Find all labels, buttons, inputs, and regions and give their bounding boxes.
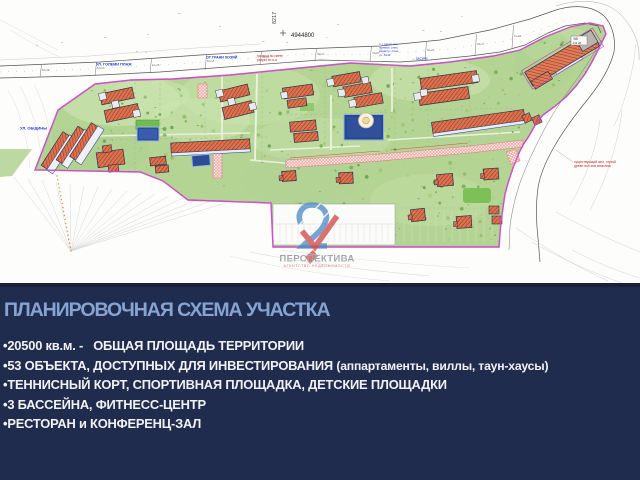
svg-text:4944800: 4944800 <box>291 33 315 39</box>
svg-text:→ МОРЕ: → МОРЕ <box>411 56 428 61</box>
svg-text:УЛ. ГОЛЕМИ ПЛАЖ: УЛ. ГОЛЕМИ ПЛАЖ <box>96 63 132 67</box>
svg-text:99+30: 99+30 <box>262 55 270 59</box>
svg-text:99+51: 99+51 <box>317 52 325 56</box>
svg-text:ОТ ГРАНИ ХОЗЯЙ: ОТ ГРАНИ ХОЗЯЙ <box>206 56 238 60</box>
svg-text:ПЕРСПЕКТИВА: ПЕРСПЕКТИВА <box>279 254 354 265</box>
svg-text:уч. 5143: уч. 5143 <box>379 53 391 57</box>
svg-text:13+45: 13+45 <box>152 63 160 67</box>
svg-text:132 кВ: 132 кВ <box>573 41 582 45</box>
svg-text:82+23: 82+23 <box>427 48 435 52</box>
svg-text:79+83: 79+83 <box>372 51 380 55</box>
svg-text:АГЕНТСТВО НЕДВИЖИМОСТИ: АГЕНТСТВО НЕДВИЖИМОСТИ <box>284 264 351 268</box>
svg-text:93+37: 93+37 <box>477 42 485 46</box>
svg-text:91+83: 91+83 <box>514 34 522 38</box>
svg-text:87+95: 87+95 <box>207 59 215 63</box>
svg-text:древн.пол зем комплекс: древн.пол зем комплекс <box>574 164 612 168</box>
svg-text:84+39: 84+39 <box>42 68 50 72</box>
svg-text:УЛ. ОБЩИНЫ: УЛ. ОБЩИНЫ <box>20 126 47 131</box>
svg-text:8217: 8217 <box>272 12 278 24</box>
svg-text:53+97: 53+97 <box>97 66 105 70</box>
